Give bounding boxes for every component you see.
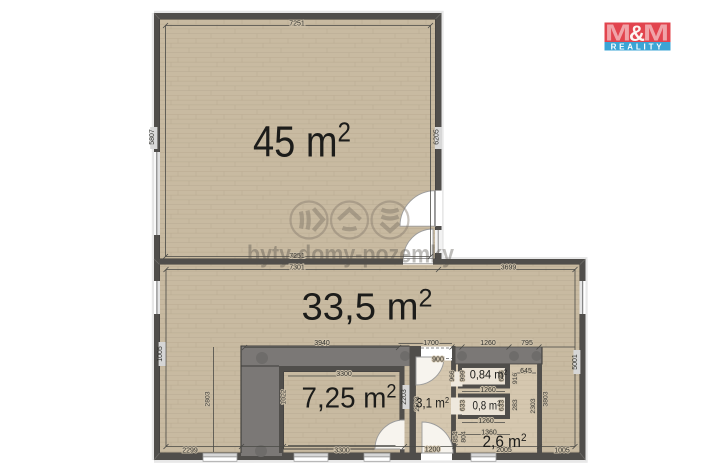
svg-text:7,25 m2: 7,25 m2	[302, 382, 397, 415]
svg-text:7251: 7251	[289, 21, 305, 28]
svg-text:966: 966	[449, 370, 456, 382]
svg-text:3300: 3300	[334, 448, 350, 455]
svg-text:2303: 2303	[530, 398, 537, 413]
svg-text:1260: 1260	[480, 387, 496, 394]
svg-text:2203: 2203	[401, 389, 408, 405]
svg-text:283: 283	[512, 399, 519, 411]
svg-text:6205: 6205	[433, 129, 440, 145]
svg-text:0,84 m2: 0,84 m2	[470, 368, 508, 382]
svg-text:795: 795	[521, 340, 533, 347]
svg-text:999: 999	[460, 370, 467, 382]
svg-text:1005: 1005	[157, 346, 164, 362]
svg-text:3940: 3940	[314, 340, 330, 347]
svg-text:2,6 m2: 2,6 m2	[483, 432, 527, 451]
svg-text:0,8 m2: 0,8 m2	[473, 399, 501, 413]
svg-text:byty-domy-pozemky: byty-domy-pozemky	[247, 241, 454, 269]
svg-text:REALITY: REALITY	[611, 43, 665, 52]
svg-text:3300: 3300	[336, 371, 352, 378]
svg-text:3803: 3803	[543, 391, 550, 406]
svg-text:633: 633	[460, 400, 467, 412]
svg-text:2299: 2299	[182, 448, 198, 455]
svg-text:1200: 1200	[425, 447, 441, 454]
svg-text:33,5 m2: 33,5 m2	[302, 285, 433, 329]
svg-text:5807: 5807	[149, 129, 156, 145]
svg-text:45 m2: 45 m2	[253, 117, 351, 167]
svg-text:645: 645	[520, 368, 532, 375]
svg-text:5001: 5001	[572, 354, 579, 370]
svg-text:3,1 m2: 3,1 m2	[416, 395, 449, 411]
svg-text:2803: 2803	[205, 391, 212, 406]
svg-text:804: 804	[461, 431, 468, 443]
svg-text:1260: 1260	[480, 340, 496, 347]
svg-text:900: 900	[432, 357, 444, 364]
svg-text:1022: 1022	[281, 389, 288, 404]
svg-text:1700: 1700	[423, 340, 439, 347]
svg-text:1005: 1005	[554, 448, 570, 455]
svg-text:854: 854	[453, 431, 460, 443]
svg-text:1260: 1260	[478, 418, 494, 425]
svg-text:916: 916	[512, 373, 519, 385]
svg-text:3699: 3699	[501, 265, 517, 272]
